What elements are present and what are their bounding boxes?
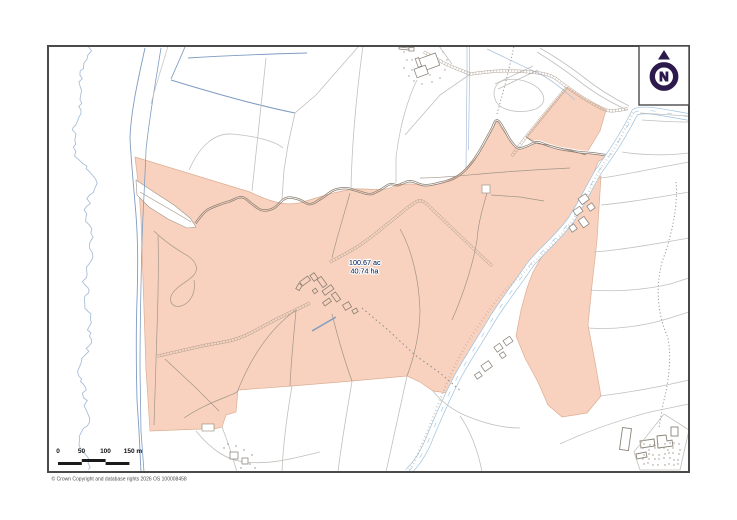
svg-text:© Crown Copyright and database: © Crown Copyright and database rights 20…	[52, 476, 187, 483]
svg-text:50: 50	[78, 448, 86, 455]
svg-text:100: 100	[100, 448, 111, 455]
svg-text:40.74 ha: 40.74 ha	[351, 267, 379, 276]
svg-text:N: N	[659, 69, 668, 84]
svg-text:150 m: 150 m	[124, 448, 143, 455]
svg-text:0: 0	[56, 448, 60, 455]
